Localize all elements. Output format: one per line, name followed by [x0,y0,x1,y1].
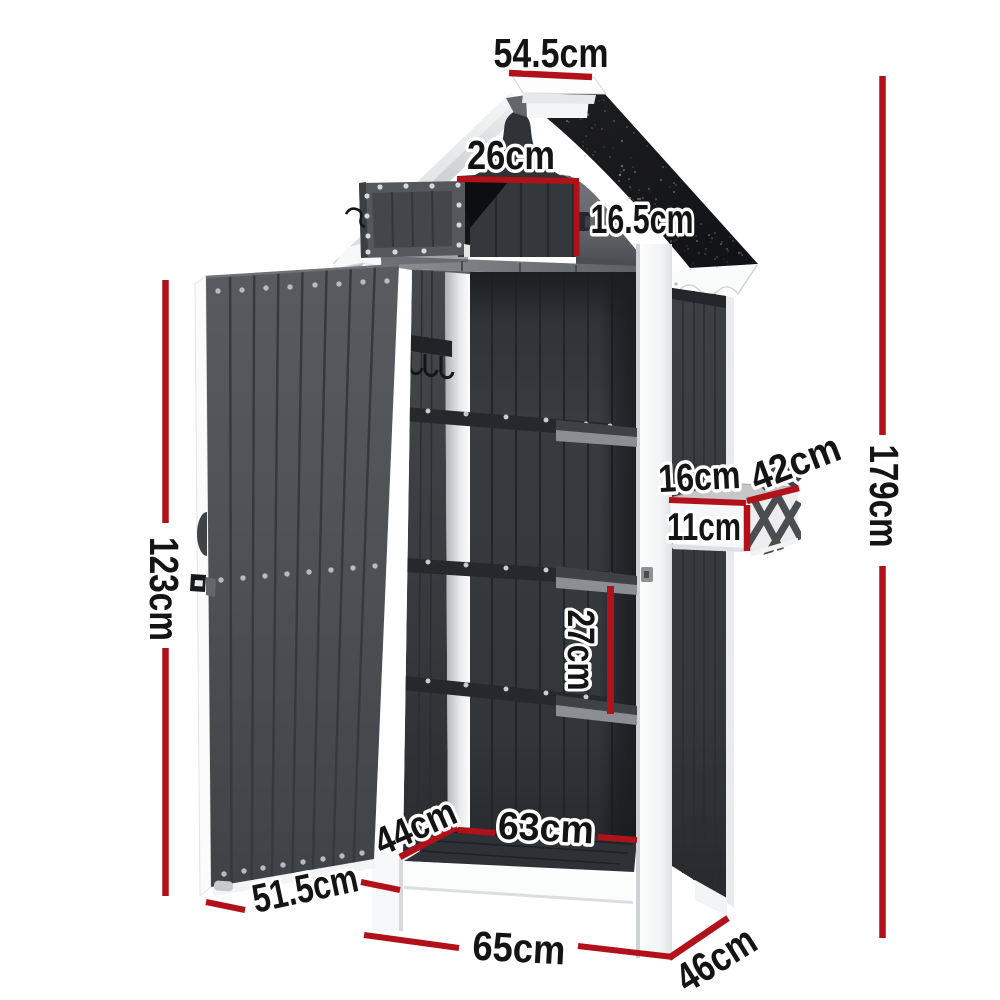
svg-text:54.5cm: 54.5cm [494,30,609,76]
svg-text:179cm: 179cm [861,445,907,548]
svg-text:27cm: 27cm [559,610,601,691]
svg-text:26cm: 26cm [467,132,555,178]
svg-text:65cm: 65cm [471,923,566,974]
svg-text:16.5cm: 16.5cm [591,196,694,242]
svg-text:123cm: 123cm [141,537,187,641]
svg-text:16cm: 16cm [657,454,741,501]
svg-text:63cm: 63cm [497,805,595,853]
svg-text:11cm: 11cm [667,506,741,549]
